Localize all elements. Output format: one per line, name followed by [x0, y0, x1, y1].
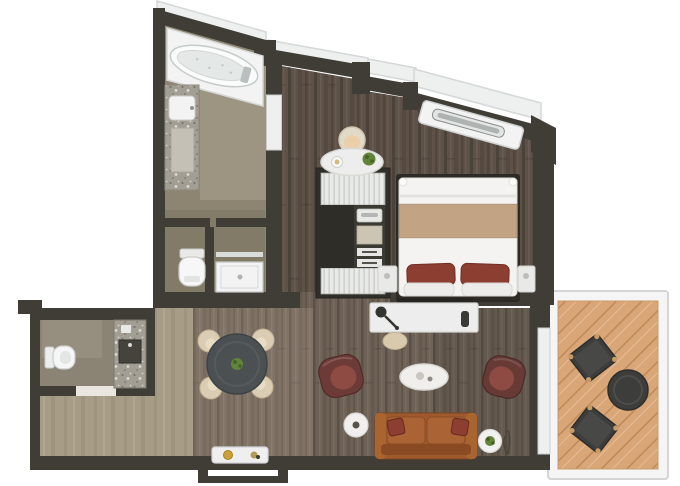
- shower-glass: [216, 252, 263, 257]
- wall-bedroom-right: [533, 128, 554, 305]
- lamp-icon: [376, 307, 387, 318]
- wc-faucet-icon: [128, 343, 132, 347]
- balcony-door: [538, 328, 550, 454]
- wall-shower-stub-left: [165, 218, 210, 227]
- white-pillow-left: [404, 283, 454, 296]
- wall-bathroom-left: [153, 8, 165, 308]
- kitchenette-shelf-top: [321, 173, 385, 205]
- bathroom-door: [267, 95, 282, 150]
- sofa-pillow-left: [387, 418, 406, 437]
- wall-shower-stub-right: [216, 218, 266, 227]
- wall-bathroom-divider: [266, 52, 282, 308]
- table-plant-icon: [231, 358, 243, 370]
- sink-faucet-icon: [190, 106, 194, 110]
- dining-set: [198, 329, 274, 399]
- white-pillow-right: [462, 283, 512, 296]
- wall-wc-bottom-left: [30, 386, 76, 396]
- appliance-panel: [357, 226, 382, 244]
- wall-living-top-left: [153, 292, 300, 308]
- balcony: [548, 291, 668, 479]
- entry-console: [212, 447, 268, 463]
- wc-toilet: [45, 346, 75, 369]
- wall-wc-top: [30, 308, 155, 320]
- floor-plan-canvas: [0, 0, 680, 486]
- kitchenette-shelf-bottom: [321, 268, 385, 294]
- coffee-table-decor: [416, 372, 424, 380]
- wall-toilet-partition: [205, 227, 214, 292]
- nightstand-right: [518, 266, 535, 292]
- floor-plan: [0, 0, 680, 486]
- console-accessory: [461, 311, 469, 327]
- entry-console-top: [212, 447, 268, 463]
- duvet-corner-right: [509, 178, 517, 186]
- gold-bowl-icon: [224, 451, 233, 460]
- vanity-inset: [171, 128, 194, 172]
- console-knob-icon: [256, 455, 260, 459]
- bed: [378, 174, 535, 302]
- wc-door-threshold: [76, 386, 116, 396]
- duvet-corner-left: [399, 178, 407, 186]
- sofa-back: [381, 444, 471, 455]
- nightstand-left: [378, 266, 397, 292]
- coffee-table: [400, 364, 448, 390]
- pouf: [383, 333, 407, 350]
- shower-drain-icon: [238, 275, 243, 280]
- desk-plant-icon: [363, 153, 376, 166]
- bathroom-toilet: [179, 249, 205, 286]
- entry-alcove-bottom: [198, 476, 288, 483]
- bed-runner: [399, 204, 517, 238]
- kitchenette-cabinet: [321, 205, 354, 268]
- sofa: [375, 413, 477, 459]
- wc-vanity-item: [121, 325, 131, 333]
- sofa-pillow-right: [451, 418, 469, 436]
